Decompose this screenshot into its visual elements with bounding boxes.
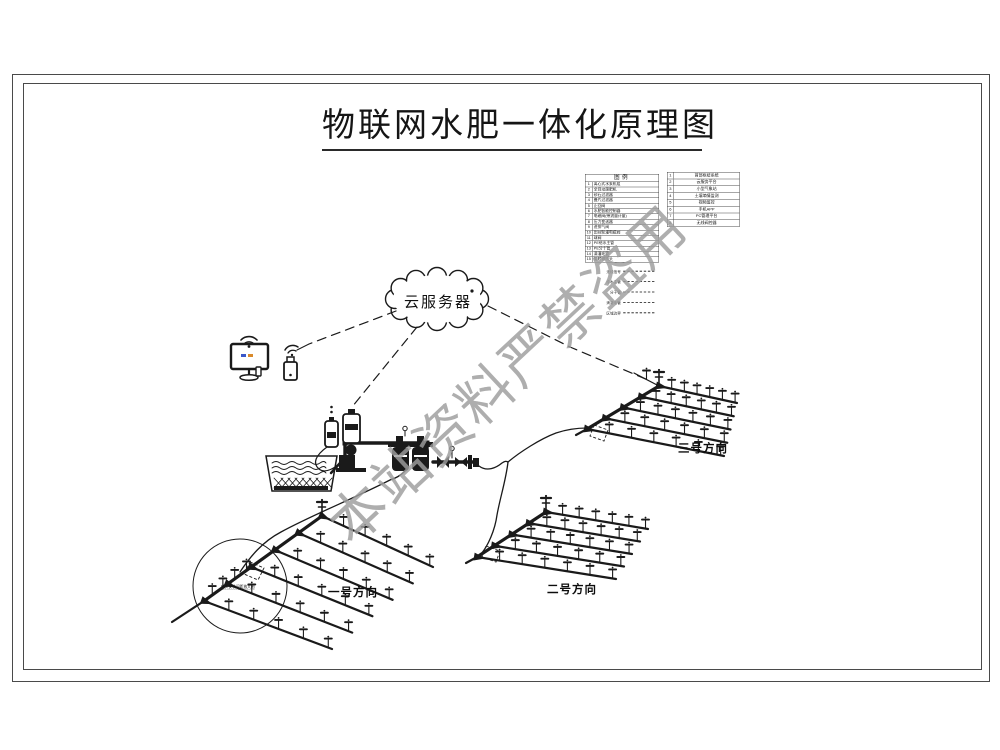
legend-row: 15旋转微喷头 (585, 257, 658, 262)
dashed-line-sample (623, 271, 654, 272)
legend-row: 7PC管理平台 (667, 213, 739, 220)
legend-table-right: 1首部枢纽系统2云服务平台3小型气象站4土壤墒情监测5视频监控6手机APP7PC… (667, 172, 740, 227)
legend-line-sample: 给水主管 (596, 276, 664, 286)
legend-row: 3小型气象站 (667, 186, 739, 193)
cloud-server-label: 云服务器 (404, 291, 472, 312)
dashed-line-sample (623, 292, 654, 293)
field-direction-label: 三号方向 (678, 440, 728, 456)
monitor-icon (231, 344, 268, 380)
legend-line-sample: 分干管 (596, 287, 664, 297)
legend-row: 1首部枢纽系统 (667, 172, 739, 179)
detail-callout-note-wrap: 喷头安装间距放大图 (221, 584, 255, 590)
irrigation-field (466, 495, 649, 579)
legend-line-sample: 无线信号 (596, 266, 664, 276)
legend-line-sample: 滴灌毛管 (596, 297, 664, 307)
dashed-line-sample (623, 312, 654, 313)
legend-row: 4土壤墒情监测 (667, 193, 739, 200)
dashed-line-sample (623, 302, 654, 303)
legend-row: 5视频监控 (667, 200, 739, 207)
smartphone-icon (284, 357, 297, 380)
field-direction-label: 一号方向 (328, 584, 378, 600)
wifi-icon (285, 344, 309, 356)
field-direction-label: 二号方向 (547, 581, 597, 597)
legend-line-sample: 区域边界 (596, 308, 664, 318)
detail-callout-note: 喷头安装间距放大图 (221, 584, 255, 590)
schematic-svg (0, 0, 1000, 750)
legend-title: 图例 (585, 174, 658, 182)
headworks-equipment (266, 406, 479, 491)
legend-row: 2云服务平台 (667, 179, 739, 186)
legend-right-body: 1首部枢纽系统2云服务平台3小型气象站4土壤墒情监测5视频监控6手机APP7PC… (667, 172, 739, 226)
legend-row: 8无线阀控器 (667, 220, 739, 226)
screen-pixel-orange (248, 354, 253, 357)
legend-row: 6手机APP (667, 206, 739, 213)
dashed-line-sample (623, 281, 654, 282)
screen-pixel-blue (241, 354, 246, 357)
wireless-dashed-links (309, 306, 648, 407)
legend-left-body: 1离心式水泵机组2全自动施肥机3砂石过滤器4叠片过滤器5止回阀6水肥智能控制器7… (585, 182, 658, 262)
legend-line-samples: 无线信号给水主管分干管滴灌毛管区域边界 (596, 266, 664, 318)
legend-table-left: 图例 1离心式水泵机组2全自动施肥机3砂石过滤器4叠片过滤器5止回阀6水肥智能控… (585, 174, 659, 262)
drawing-canvas: 物联网水肥一体化原理图 云服务器 图例 1离心式水泵机组2全自动施肥机3砂石过滤… (0, 0, 1000, 750)
